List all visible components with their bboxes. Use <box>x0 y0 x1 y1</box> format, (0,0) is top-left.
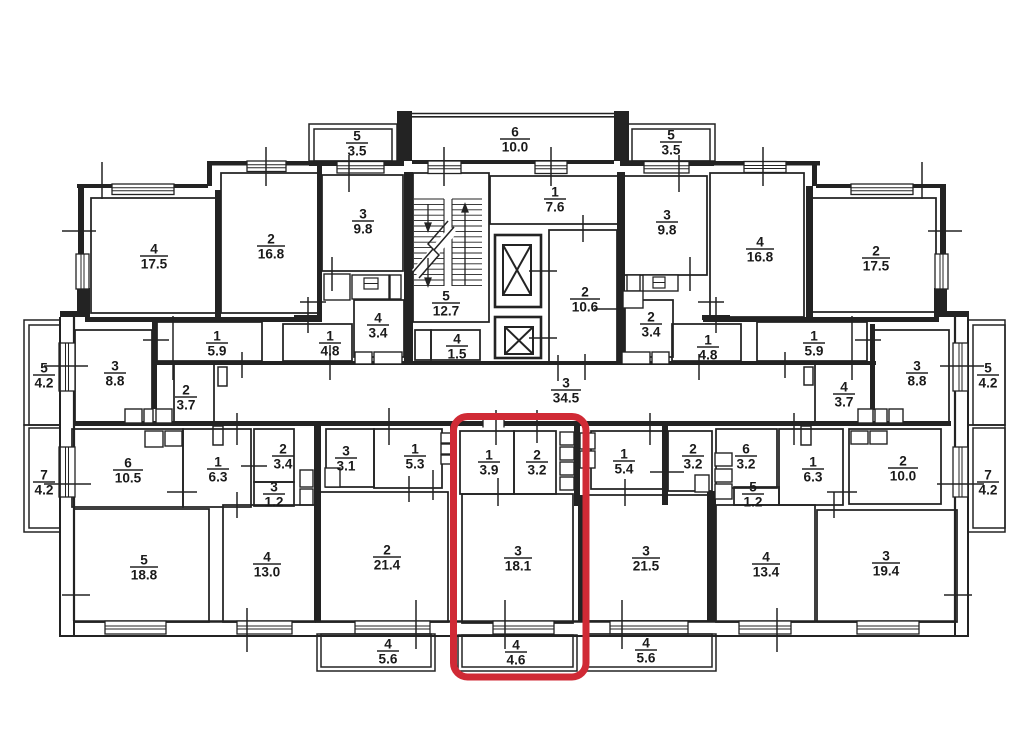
svg-text:3: 3 <box>359 207 367 222</box>
svg-text:1: 1 <box>213 329 221 344</box>
svg-text:2: 2 <box>267 232 275 247</box>
svg-text:3.5: 3.5 <box>348 144 367 159</box>
svg-text:3.4: 3.4 <box>642 325 661 340</box>
svg-text:6: 6 <box>511 125 519 140</box>
svg-text:21.5: 21.5 <box>633 559 660 574</box>
svg-text:3: 3 <box>642 544 650 559</box>
svg-text:5.6: 5.6 <box>379 652 398 667</box>
svg-text:4.2: 4.2 <box>35 483 54 498</box>
svg-text:3: 3 <box>111 359 119 374</box>
svg-text:1: 1 <box>551 185 559 200</box>
svg-text:5: 5 <box>667 128 675 143</box>
svg-text:2: 2 <box>182 383 190 398</box>
svg-text:3.4: 3.4 <box>274 457 293 472</box>
svg-text:3.2: 3.2 <box>737 457 756 472</box>
svg-text:4: 4 <box>642 636 650 651</box>
svg-text:3.1: 3.1 <box>337 459 356 474</box>
svg-text:3: 3 <box>562 376 570 391</box>
svg-text:16.8: 16.8 <box>258 247 285 262</box>
svg-text:16.8: 16.8 <box>747 250 774 265</box>
svg-text:2: 2 <box>899 454 907 469</box>
svg-text:17.5: 17.5 <box>863 259 890 274</box>
svg-text:5.9: 5.9 <box>805 344 824 359</box>
svg-text:3.7: 3.7 <box>177 398 196 413</box>
svg-text:2: 2 <box>581 285 589 300</box>
svg-text:19.4: 19.4 <box>873 564 900 579</box>
svg-text:4: 4 <box>512 638 520 653</box>
svg-text:2: 2 <box>383 543 391 558</box>
svg-text:3.7: 3.7 <box>835 395 854 410</box>
svg-text:5.6: 5.6 <box>637 651 656 666</box>
svg-text:5.4: 5.4 <box>615 462 634 477</box>
svg-text:5: 5 <box>353 129 361 144</box>
svg-text:5: 5 <box>442 289 450 304</box>
svg-text:3: 3 <box>882 549 890 564</box>
svg-text:4: 4 <box>374 311 382 326</box>
svg-text:10.5: 10.5 <box>115 471 142 486</box>
svg-text:4: 4 <box>762 550 770 565</box>
svg-text:4.2: 4.2 <box>35 376 54 391</box>
svg-text:2: 2 <box>279 442 287 457</box>
svg-text:2: 2 <box>689 442 697 457</box>
svg-text:4: 4 <box>840 380 848 395</box>
svg-text:4.2: 4.2 <box>979 483 998 498</box>
svg-text:1: 1 <box>411 442 419 457</box>
svg-text:21.4: 21.4 <box>374 558 401 573</box>
svg-text:18.1: 18.1 <box>505 559 532 574</box>
svg-text:3: 3 <box>342 444 350 459</box>
svg-text:9.8: 9.8 <box>658 223 677 238</box>
svg-text:1: 1 <box>214 455 222 470</box>
svg-text:18.8: 18.8 <box>131 568 158 583</box>
svg-text:3: 3 <box>663 208 671 223</box>
svg-text:6.3: 6.3 <box>804 470 823 485</box>
svg-text:8.8: 8.8 <box>106 374 125 389</box>
svg-text:10.6: 10.6 <box>572 300 599 315</box>
svg-text:8.8: 8.8 <box>908 374 927 389</box>
svg-text:3.5: 3.5 <box>662 143 681 158</box>
svg-text:1: 1 <box>809 455 817 470</box>
svg-text:6.3: 6.3 <box>209 470 228 485</box>
svg-text:5: 5 <box>140 553 148 568</box>
svg-text:1.5: 1.5 <box>448 347 467 362</box>
svg-text:3: 3 <box>270 480 278 495</box>
svg-text:1: 1 <box>620 447 628 462</box>
svg-text:7: 7 <box>984 468 992 483</box>
svg-text:6: 6 <box>742 442 750 457</box>
svg-text:1.2: 1.2 <box>744 495 763 510</box>
svg-text:1: 1 <box>810 329 818 344</box>
svg-text:3: 3 <box>913 359 921 374</box>
svg-text:4: 4 <box>756 235 764 250</box>
svg-text:4: 4 <box>453 332 461 347</box>
svg-text:3.4: 3.4 <box>369 326 388 341</box>
svg-text:3: 3 <box>514 544 522 559</box>
svg-text:13.4: 13.4 <box>753 565 780 580</box>
svg-text:4.8: 4.8 <box>321 344 340 359</box>
svg-text:5: 5 <box>40 361 48 376</box>
svg-text:9.8: 9.8 <box>354 222 373 237</box>
svg-text:4: 4 <box>384 637 392 652</box>
svg-text:13.0: 13.0 <box>254 565 280 580</box>
svg-text:4: 4 <box>263 550 271 565</box>
svg-text:34.5: 34.5 <box>553 391 580 406</box>
svg-text:2: 2 <box>872 244 880 259</box>
svg-text:1: 1 <box>485 448 493 463</box>
svg-text:1: 1 <box>326 329 334 344</box>
svg-text:12.7: 12.7 <box>433 304 459 319</box>
svg-text:6: 6 <box>124 456 132 471</box>
svg-text:5.3: 5.3 <box>406 457 425 472</box>
svg-text:3.9: 3.9 <box>480 463 499 478</box>
svg-text:4: 4 <box>150 242 158 257</box>
svg-text:3.2: 3.2 <box>528 463 547 478</box>
svg-text:4.8: 4.8 <box>699 348 718 363</box>
svg-text:3.2: 3.2 <box>684 457 703 472</box>
svg-text:17.5: 17.5 <box>141 257 168 272</box>
svg-text:4.6: 4.6 <box>507 653 526 668</box>
svg-text:5: 5 <box>749 480 757 495</box>
svg-text:10.0: 10.0 <box>502 140 528 155</box>
svg-text:5: 5 <box>984 361 992 376</box>
svg-text:7.6: 7.6 <box>546 200 565 215</box>
svg-text:4.2: 4.2 <box>979 376 998 391</box>
svg-text:1.2: 1.2 <box>265 495 284 510</box>
svg-text:7: 7 <box>40 468 48 483</box>
svg-text:5.9: 5.9 <box>208 344 227 359</box>
svg-text:1: 1 <box>704 333 712 348</box>
svg-text:2: 2 <box>647 310 655 325</box>
svg-text:10.0: 10.0 <box>890 469 916 484</box>
svg-text:2: 2 <box>533 448 541 463</box>
